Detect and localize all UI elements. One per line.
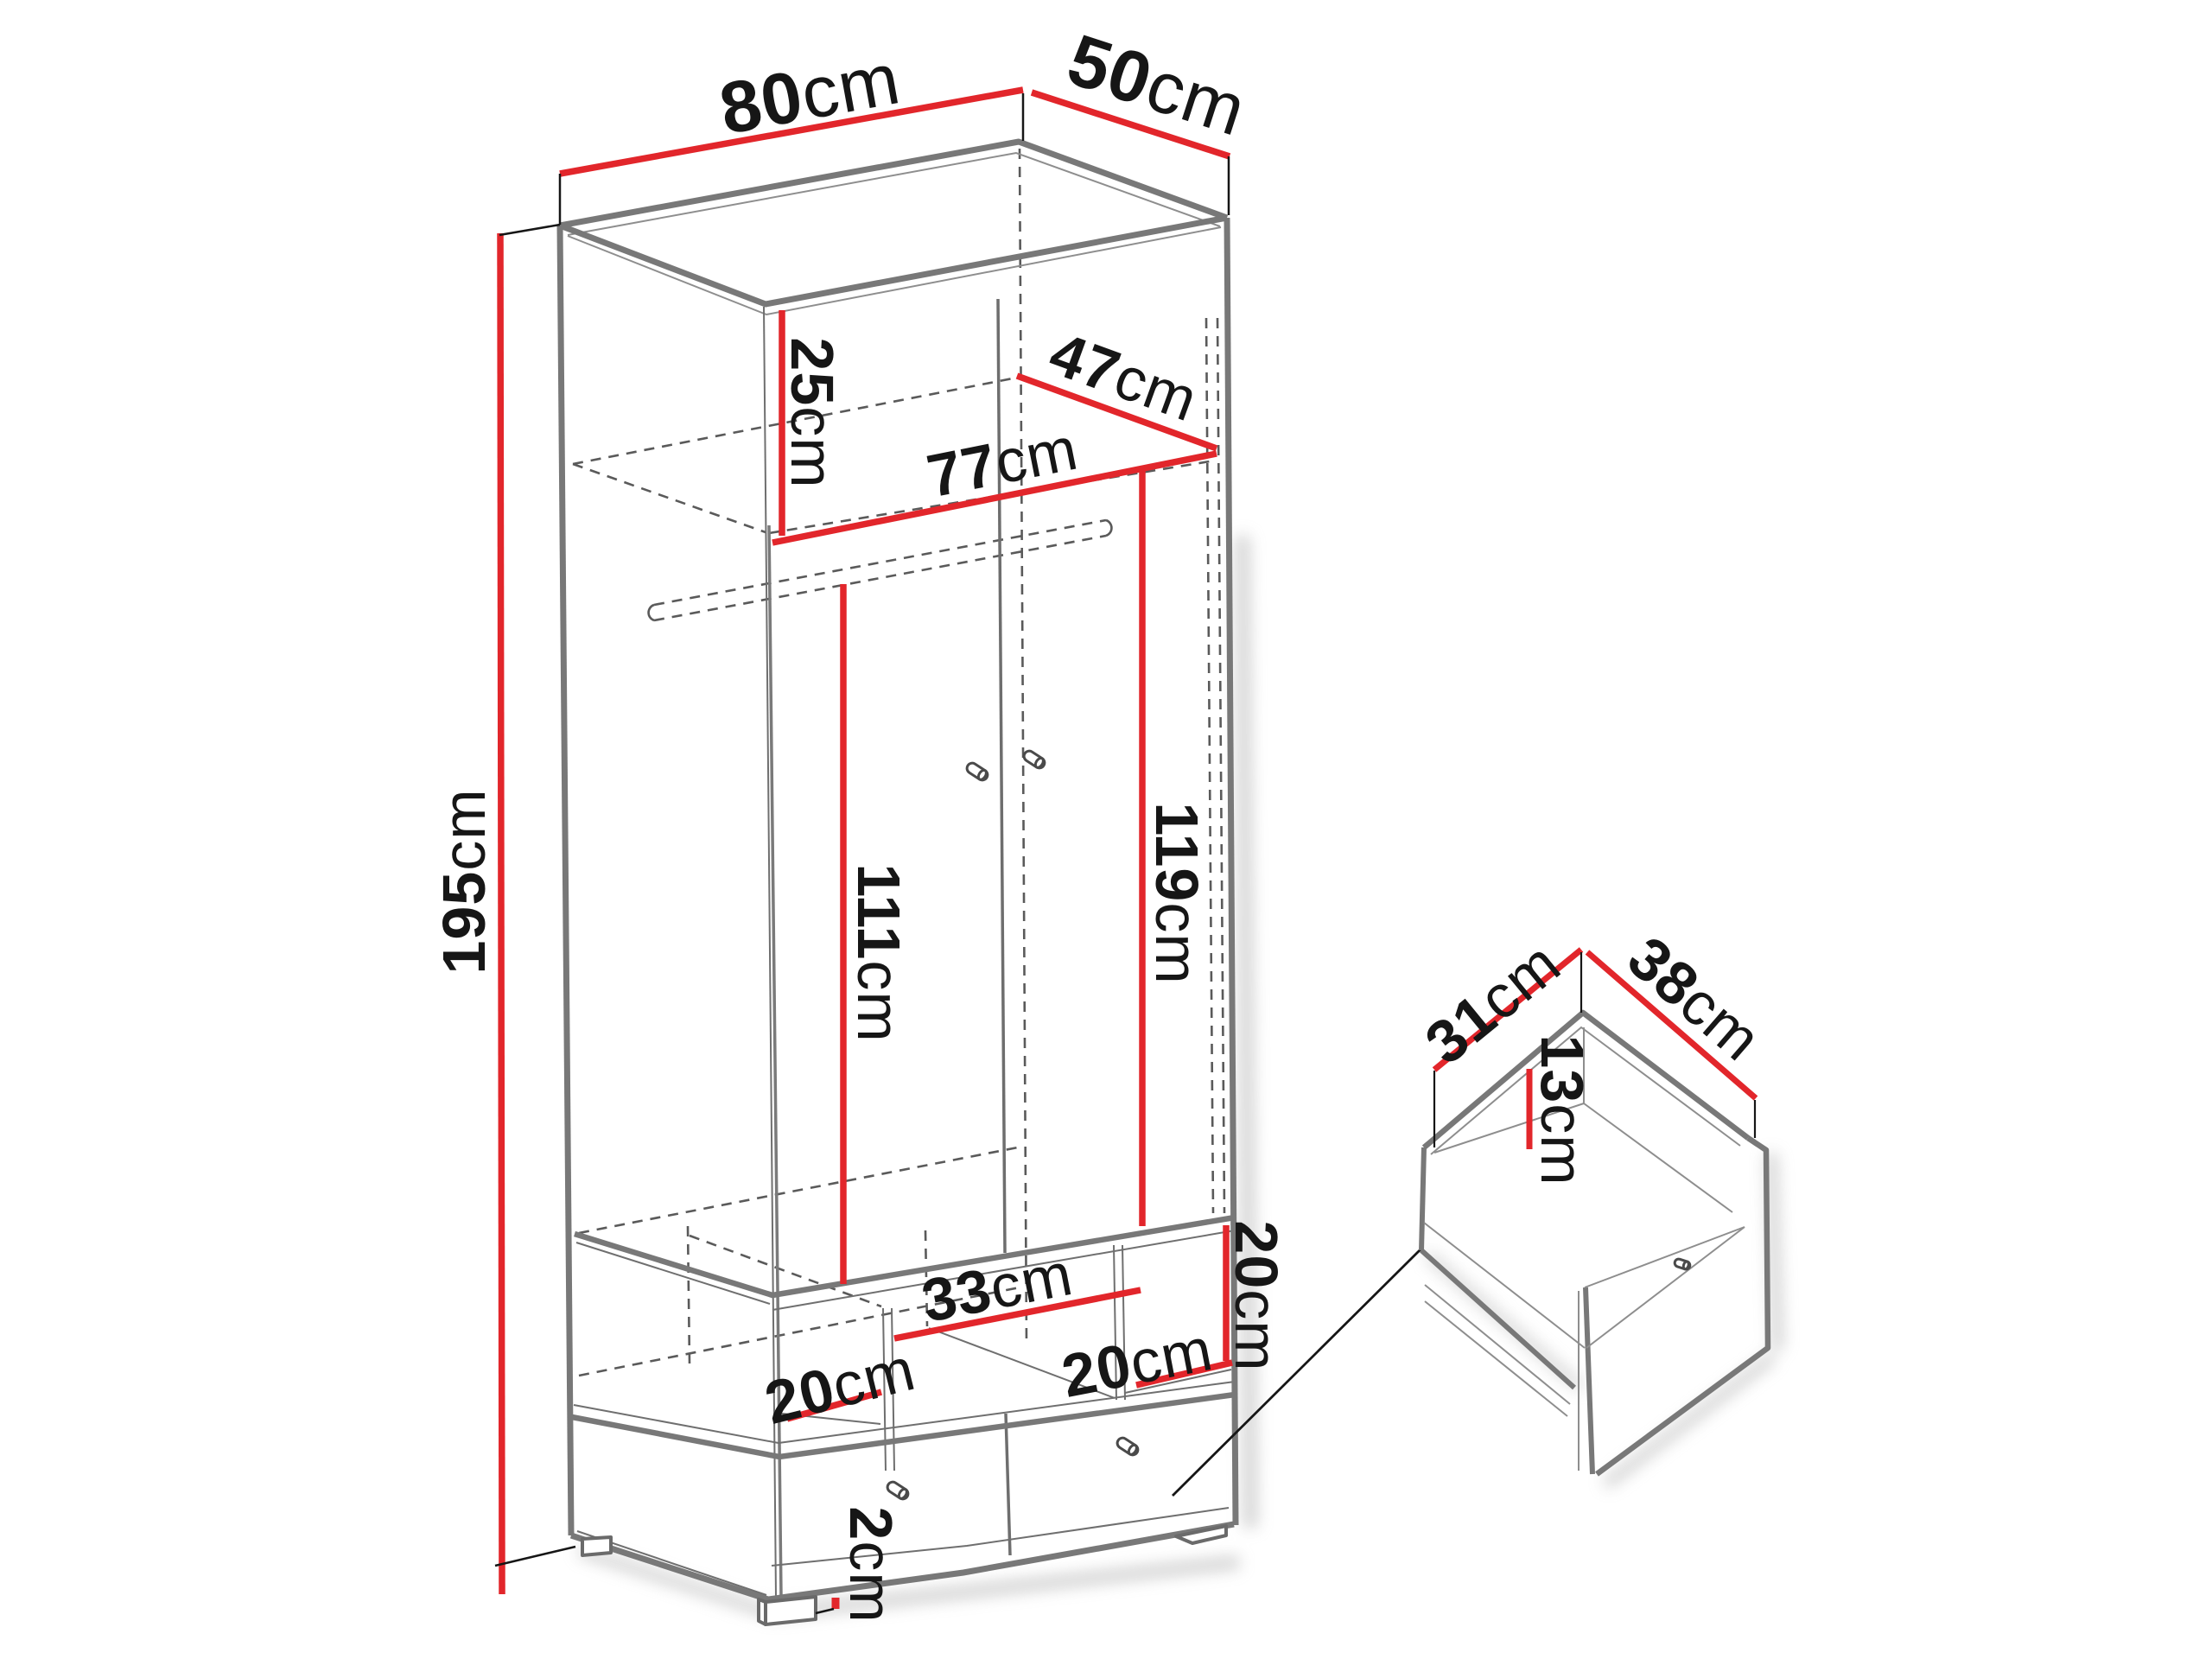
svg-text:2cm: 2cm: [837, 1506, 905, 1623]
svg-text:119cm: 119cm: [1143, 802, 1211, 984]
svg-text:13cm: 13cm: [1529, 1034, 1596, 1185]
svg-text:195cm: 195cm: [430, 788, 498, 974]
svg-text:25cm: 25cm: [779, 337, 846, 488]
svg-text:20cm: 20cm: [1223, 1220, 1290, 1371]
svg-text:111cm: 111cm: [845, 863, 912, 1042]
